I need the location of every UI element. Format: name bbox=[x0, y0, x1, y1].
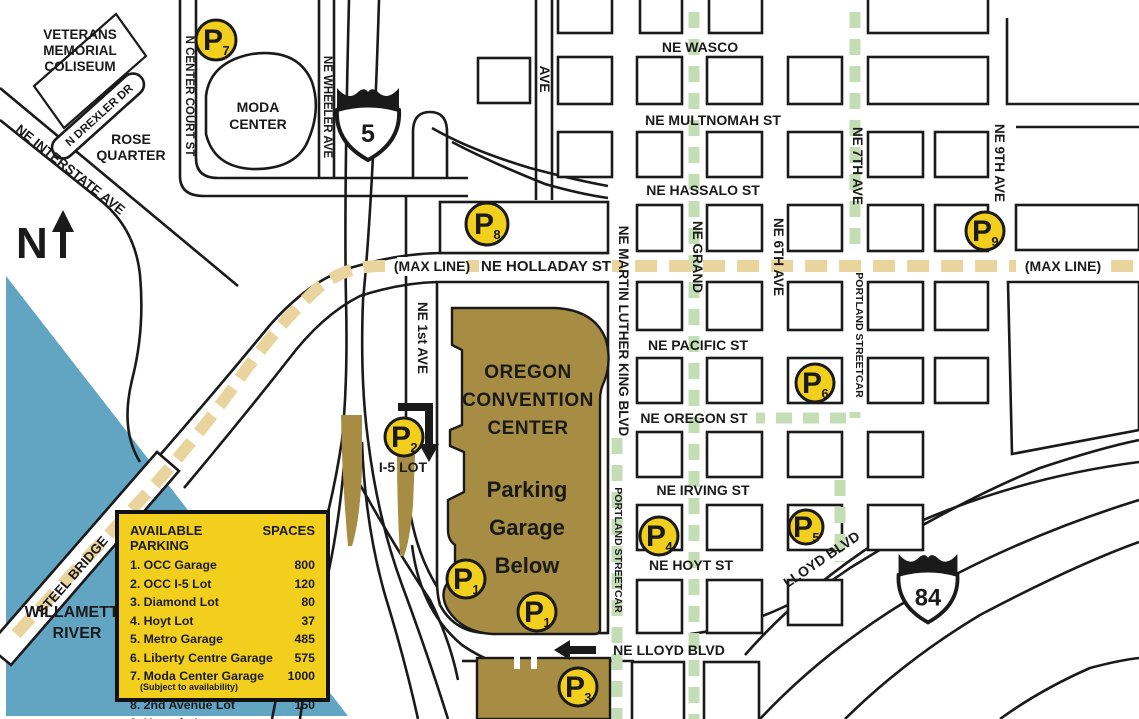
streetcar-mlk-label: PORTLAND STREETCAR bbox=[612, 487, 624, 613]
i5-lot-label: I-5 LOT bbox=[379, 459, 428, 475]
parking-map: VETERANS MEMORIAL COLISEUM ROSE QUARTER … bbox=[0, 0, 1139, 719]
grand-ave-label: NE GRAND bbox=[690, 221, 705, 293]
marker-p8: P 8 bbox=[466, 203, 508, 245]
first-ave-label: NE 1st AVE bbox=[415, 302, 430, 374]
mlk-blvd-label: NE MARTIN LUTHER KING BLVD bbox=[616, 226, 631, 437]
veterans-label: VETERANS bbox=[43, 27, 117, 42]
center-court-label: N CENTER COURT ST bbox=[183, 36, 195, 157]
marker-p7: P 7 bbox=[196, 20, 236, 60]
svg-text:P: P bbox=[793, 511, 813, 544]
legend-row-hoyt-lot: 4. Hoyt Lot37 bbox=[130, 615, 315, 627]
svg-text:P: P bbox=[203, 24, 223, 57]
wheeler-ave-label: NE WHEELER AVE bbox=[321, 56, 333, 159]
pacific-label: NE PACIFIC ST bbox=[648, 337, 749, 353]
legend-spaces-header: SPACES bbox=[263, 523, 316, 553]
svg-text:P: P bbox=[391, 421, 411, 454]
parking-legend: AVAILABLE PARKING SPACES 1. OCC Garage80… bbox=[115, 510, 330, 702]
i5-lot-west-strip bbox=[341, 415, 362, 546]
svg-text:COLISEUM: COLISEUM bbox=[44, 59, 115, 74]
svg-text:1: 1 bbox=[543, 615, 550, 630]
svg-text:P: P bbox=[802, 367, 822, 400]
svg-text:P: P bbox=[972, 215, 992, 248]
occ-label: OREGON bbox=[484, 362, 571, 383]
svg-text:P: P bbox=[453, 563, 473, 596]
interstate-84-shield: 84 bbox=[898, 554, 957, 622]
svg-text:9: 9 bbox=[991, 234, 998, 249]
legend-row-diamond-lot: 3. Diamond Lot80 bbox=[130, 596, 315, 608]
north-label: N bbox=[16, 219, 48, 268]
sixth-ave-label: NE 6TH AVE bbox=[771, 218, 786, 296]
marker-p6: P 6 bbox=[796, 364, 834, 402]
legend-row-metro-garage: 5. Metro Garage485 bbox=[130, 633, 315, 645]
streetcar-7th-label: PORTLAND STREETCAR bbox=[853, 272, 865, 398]
svg-text:CENTER: CENTER bbox=[229, 116, 287, 132]
parking-garage-label: Parking bbox=[487, 477, 568, 502]
multnomah-label: NE MULTNOMAH ST bbox=[645, 112, 781, 128]
lloyd-label: NE LLOYD BLVD bbox=[613, 642, 725, 658]
svg-text:Below: Below bbox=[495, 553, 561, 578]
svg-text:6: 6 bbox=[821, 386, 828, 401]
svg-text:8: 8 bbox=[493, 227, 500, 242]
oregon-label: NE OREGON ST bbox=[640, 410, 748, 426]
legend-row-moda-garage: 7. Moda Center Garage1000 bbox=[130, 670, 315, 682]
marker-p9: P 9 bbox=[966, 212, 1004, 250]
hassalo-label: NE HASSALO ST bbox=[646, 182, 760, 198]
legend-row-2nd-avenue-lot: 8. 2nd Avenue Lot150 bbox=[130, 699, 315, 711]
legend-row-occ-i5-lot: 2. OCC I-5 Lot120 bbox=[130, 578, 315, 590]
rose-quarter-label: ROSE bbox=[111, 131, 151, 147]
moda-center-label: MODA bbox=[237, 99, 280, 115]
svg-text:MEMORIAL: MEMORIAL bbox=[43, 43, 117, 58]
svg-text:P: P bbox=[524, 596, 544, 629]
north-arrow: N bbox=[16, 210, 74, 268]
svg-text:P: P bbox=[646, 520, 666, 553]
marker-p2: P 2 bbox=[385, 418, 423, 456]
svg-text:4: 4 bbox=[665, 539, 673, 554]
svg-text:QUARTER: QUARTER bbox=[96, 147, 165, 163]
marker-p5: P 5 bbox=[789, 510, 823, 545]
marker-p4: P 4 bbox=[640, 517, 678, 555]
svg-text:Garage: Garage bbox=[489, 515, 565, 540]
svg-text:84: 84 bbox=[915, 584, 942, 611]
svg-text:CONVENTION: CONVENTION bbox=[462, 390, 594, 411]
hoyt-label: NE HOYT ST bbox=[649, 557, 733, 573]
svg-text:RIVER: RIVER bbox=[53, 625, 102, 642]
holladay-label: NE HOLLADAY ST bbox=[481, 258, 611, 275]
wasco-label: NE WASCO bbox=[662, 39, 738, 55]
ninth-ave-label: NE 9TH AVE bbox=[992, 124, 1007, 202]
legend-moda-note: (Subject to availability) bbox=[140, 683, 315, 692]
svg-text:7: 7 bbox=[222, 43, 229, 58]
max-line-left-label: (MAX LINE) bbox=[394, 258, 470, 274]
marker-p1-south: P 1 bbox=[518, 593, 556, 631]
svg-text:3: 3 bbox=[584, 690, 591, 705]
svg-text:5: 5 bbox=[361, 120, 375, 148]
seventh-ave-label: NE 7TH AVE bbox=[850, 127, 865, 205]
legend-row-liberty-centre: 6. Liberty Centre Garage575 bbox=[130, 652, 315, 664]
ave-label: AVE bbox=[537, 66, 552, 93]
legend-row-occ-garage: 1. OCC Garage800 bbox=[130, 559, 315, 571]
marker-p3: P 3 bbox=[559, 668, 597, 706]
svg-text:5: 5 bbox=[812, 530, 819, 545]
irving-label: NE IRVING ST bbox=[656, 482, 750, 498]
svg-text:P: P bbox=[474, 208, 494, 241]
willamette-river-label: WILLAMETTE bbox=[25, 604, 130, 621]
svg-text:1: 1 bbox=[472, 582, 479, 597]
legend-title: AVAILABLE PARKING bbox=[130, 523, 263, 553]
svg-text:CENTER: CENTER bbox=[487, 418, 568, 439]
max-line-right-label: (MAX LINE) bbox=[1025, 258, 1101, 274]
marker-p1-west: P 1 bbox=[447, 560, 485, 598]
svg-text:2: 2 bbox=[410, 440, 417, 455]
svg-text:P: P bbox=[565, 671, 585, 704]
